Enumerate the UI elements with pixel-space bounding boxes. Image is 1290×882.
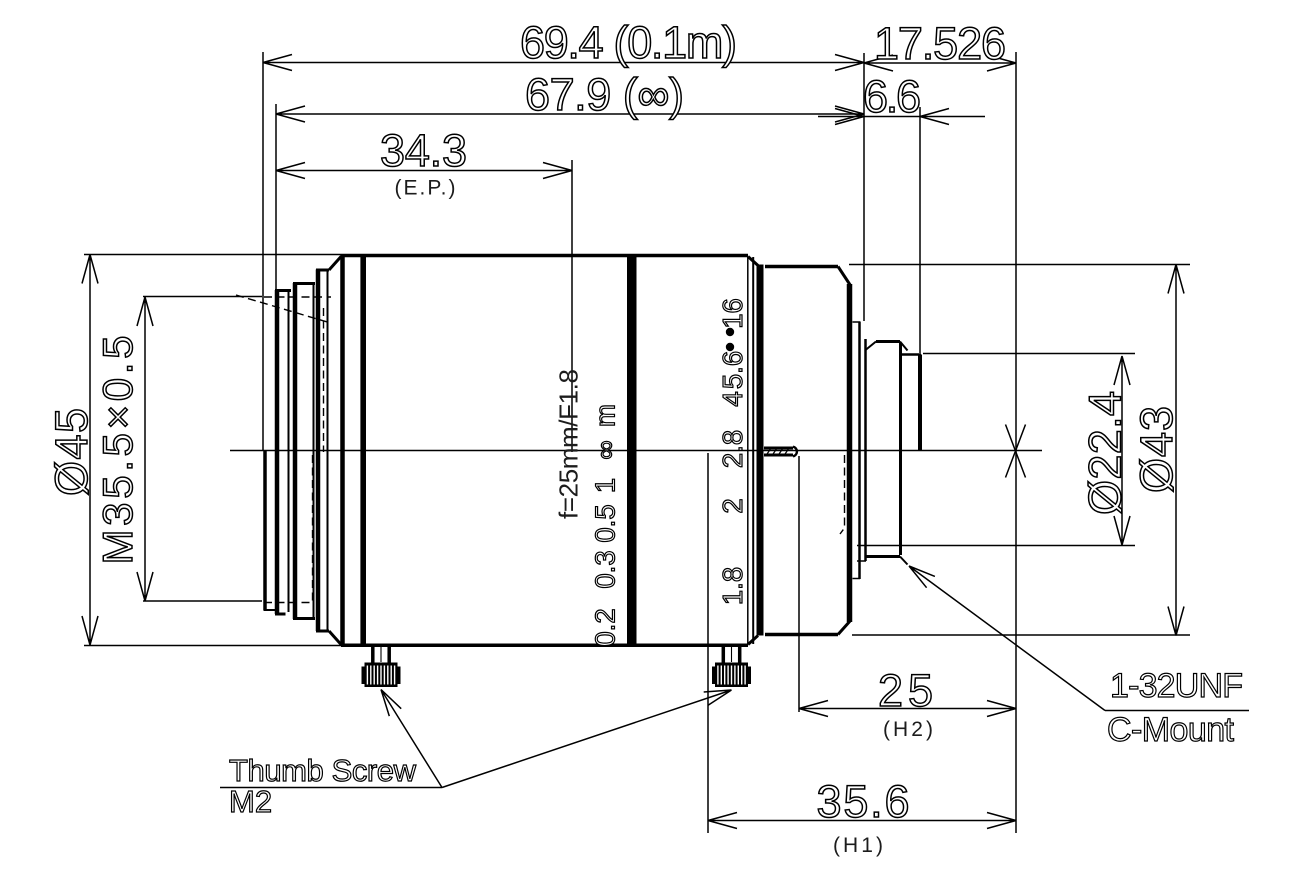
svg-text:0.3: 0.3 [590,550,621,588]
svg-text:f=25mm/F1.8: f=25mm/F1.8 [554,369,584,519]
svg-text:1.8: 1.8 [717,567,748,605]
svg-text:1-32UNF: 1-32UNF [1110,667,1243,705]
svg-text:(H1): (H1) [833,834,883,857]
svg-text:16: 16 [717,298,748,329]
svg-text:69.4 (0.1m): 69.4 (0.1m) [520,17,737,68]
svg-text:0.2: 0.2 [590,608,621,646]
svg-text:(H2): (H2) [883,718,933,741]
svg-text:C-Mount: C-Mount [1107,711,1235,749]
svg-text:Ø45: Ø45 [46,408,97,496]
svg-text:M35.5×0.5: M35.5×0.5 [94,336,141,565]
svg-text:(E.P.): (E.P.) [395,177,456,200]
svg-text:m: m [590,404,621,427]
svg-text:6.6: 6.6 [863,71,921,122]
svg-text:2.8: 2.8 [717,430,748,468]
svg-text:∞: ∞ [590,440,621,460]
svg-text:34.3: 34.3 [380,125,467,176]
svg-text:5.6: 5.6 [717,351,748,389]
svg-text:2: 2 [717,498,748,513]
svg-text:Ø22.4: Ø22.4 [1080,391,1131,515]
svg-text:1: 1 [590,478,621,493]
svg-text:0.5: 0.5 [590,504,621,542]
svg-text:4: 4 [717,391,748,406]
svg-text:35.6: 35.6 [817,776,910,827]
svg-text:67.9 (∞): 67.9 (∞) [525,69,684,120]
svg-text:Ø43: Ø43 [1131,406,1182,493]
svg-text:M2: M2 [229,784,272,819]
svg-text:Thumb Screw: Thumb Screw [229,753,417,788]
svg-text:17.526: 17.526 [874,18,1006,69]
